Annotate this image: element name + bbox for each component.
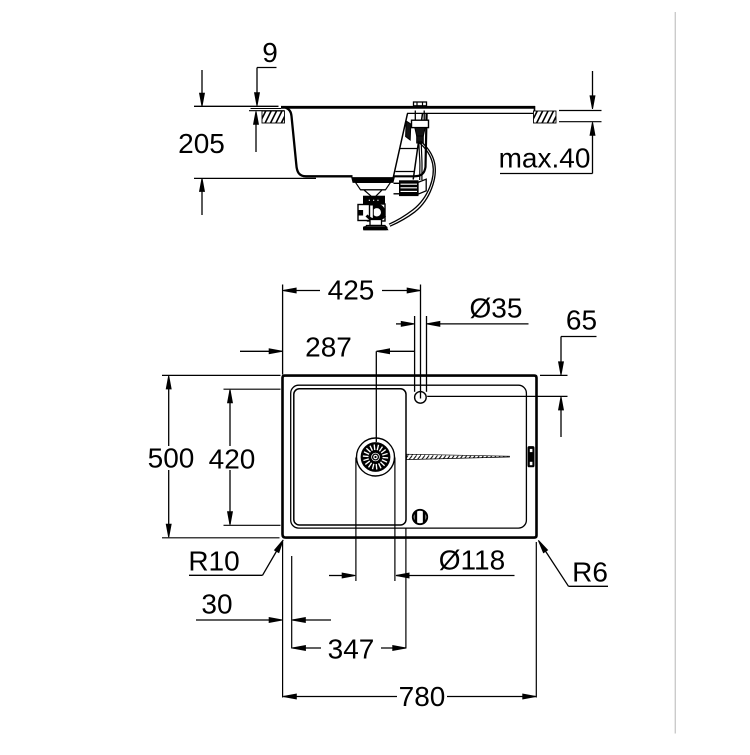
- svg-text:425: 425: [328, 275, 375, 306]
- svg-text:205: 205: [178, 128, 225, 159]
- svg-text:Ø35: Ø35: [470, 293, 523, 324]
- svg-text:R6: R6: [572, 557, 608, 588]
- svg-text:R10: R10: [188, 546, 239, 577]
- svg-text:347: 347: [328, 634, 375, 665]
- svg-text:65: 65: [566, 305, 597, 336]
- svg-text:Ø118: Ø118: [439, 545, 505, 576]
- svg-text:420: 420: [209, 444, 256, 475]
- svg-text:287: 287: [305, 332, 352, 363]
- svg-text:30: 30: [201, 589, 232, 620]
- svg-text:780: 780: [399, 681, 446, 712]
- svg-text:9: 9: [262, 37, 278, 68]
- svg-text:max.40: max.40: [499, 143, 591, 174]
- svg-text:500: 500: [148, 443, 195, 474]
